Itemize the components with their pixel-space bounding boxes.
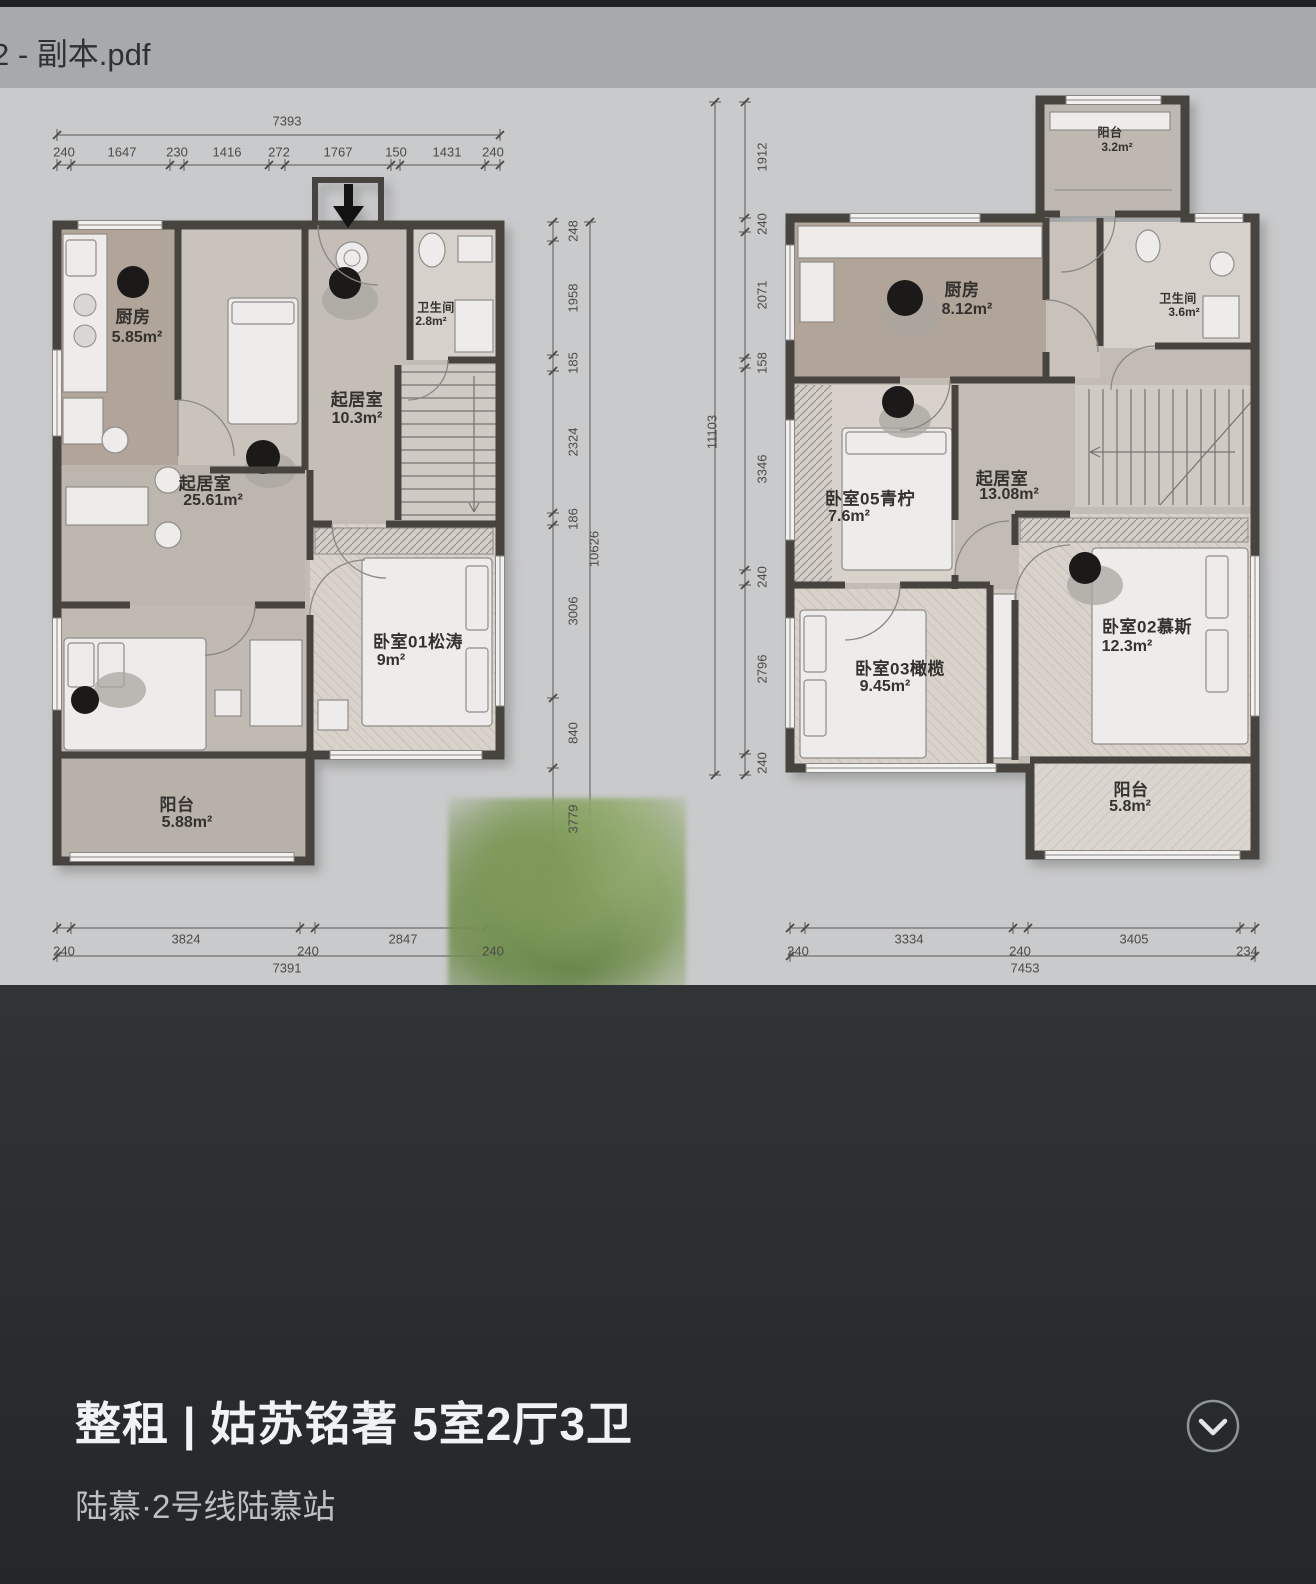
dimension-label: 1912 xyxy=(755,143,770,172)
room-area: 5.8m² xyxy=(1109,798,1151,816)
dimension-label: 240 xyxy=(53,944,75,959)
dimension-label: 7453 xyxy=(1011,961,1040,976)
dimension-label: 1647 xyxy=(108,145,137,160)
floor-plan-1 xyxy=(53,180,505,862)
dimension-label: 1767 xyxy=(324,145,353,160)
dimension-label: 1416 xyxy=(213,145,242,160)
dimension-label: 240 xyxy=(53,145,75,160)
dimension-label: 240 xyxy=(1009,944,1031,959)
room-area: 25.61m² xyxy=(183,492,243,510)
room-label: 卧室03橄榄 xyxy=(855,655,945,680)
pdf-page[interactable]: 7393240164723014162721767150143124024819… xyxy=(0,88,1316,985)
room-area: 9m² xyxy=(377,652,405,670)
dimension-label: 1958 xyxy=(566,284,581,313)
dimension-label: 2796 xyxy=(755,655,770,684)
dimension-label: 3779 xyxy=(566,805,581,834)
dimension-label: 3334 xyxy=(895,932,924,947)
room-area: 2.8m² xyxy=(415,314,446,328)
dimension-label: 240 xyxy=(482,944,504,959)
listing-panel: 整租 | 姑苏铭著 5室2厅3卫 陆慕·2号线陆慕站 xyxy=(0,985,1316,1584)
room-label: 厨房 xyxy=(945,276,980,301)
dimension-label: 234 xyxy=(1236,944,1258,959)
dimension-label: 240 xyxy=(787,944,809,959)
room-label: 起居室 xyxy=(179,470,232,495)
dimension-label: 3824 xyxy=(172,932,201,947)
room-area: 9.45m² xyxy=(860,678,911,696)
room-label: 卧室01松涛 xyxy=(373,628,463,653)
dimension-label: 7391 xyxy=(273,961,302,976)
dimension-label: 158 xyxy=(755,352,770,374)
dimension-label: 240 xyxy=(755,566,770,588)
room-area: 10.3m² xyxy=(332,410,383,428)
room-area: 7.6m² xyxy=(828,508,870,526)
pdf-titlebar: 2 - 副本.pdf xyxy=(0,7,1316,88)
room-area: 3.6m² xyxy=(1168,305,1199,319)
chevron-down-icon xyxy=(1185,1398,1241,1454)
room-area: 8.12m² xyxy=(942,301,993,319)
dimension-label: 272 xyxy=(268,145,290,160)
screen: 2 - 副本.pdf xyxy=(0,0,1316,1584)
dimension-label: 3006 xyxy=(566,597,581,626)
room-area: 13.08m² xyxy=(979,486,1039,504)
room-area: 3.2m² xyxy=(1101,140,1132,154)
listing-title: 整租 | 姑苏铭著 5室2厅3卫 xyxy=(75,1388,633,1454)
room-label: 阳台 xyxy=(1114,776,1149,801)
dimension-label: 186 xyxy=(566,508,581,530)
room-label: 卧室02慕斯 xyxy=(1102,613,1192,638)
dimension-label: 1431 xyxy=(433,145,462,160)
dimension-label: 2847 xyxy=(389,932,418,947)
room-label: 卫生间 xyxy=(1159,290,1197,307)
room-area: 5.85m² xyxy=(112,329,163,347)
room-label: 卫生间 xyxy=(417,299,455,316)
room-area: 5.88m² xyxy=(162,814,213,832)
collapse-button[interactable] xyxy=(1185,1398,1241,1454)
pdf-filename: 2 - 副本.pdf xyxy=(0,29,151,74)
status-strip xyxy=(0,0,1316,7)
dimension-label: 230 xyxy=(166,145,188,160)
dimension-label: 240 xyxy=(482,145,504,160)
dimension-label: 2324 xyxy=(566,428,581,457)
listing-location: 陆慕·2号线陆慕站 xyxy=(75,1480,335,1528)
dimension-label: 248 xyxy=(566,220,581,242)
dimension-label: 240 xyxy=(297,944,319,959)
room-label: 阳台 xyxy=(1097,124,1122,141)
dimension-label: 185 xyxy=(566,352,581,374)
room-label: 卧室05青柠 xyxy=(825,485,915,510)
dimension-label: 3346 xyxy=(755,455,770,484)
room-label: 阳台 xyxy=(160,791,195,816)
dimension-label: 2071 xyxy=(755,281,770,310)
dimension-label: 150 xyxy=(385,145,407,160)
room-area: 12.3m² xyxy=(1102,638,1153,656)
dimension-label: 11103 xyxy=(705,415,720,449)
dimension-label: 10626 xyxy=(587,531,602,567)
dimension-label: 7393 xyxy=(273,114,302,129)
room-label: 起居室 xyxy=(331,386,384,411)
entry-arrow xyxy=(344,184,353,206)
dimension-label: 240 xyxy=(755,213,770,235)
dimension-label: 3405 xyxy=(1120,932,1149,947)
room-label: 厨房 xyxy=(116,303,151,328)
dimension-label: 240 xyxy=(755,752,770,774)
dimension-label: 840 xyxy=(566,722,581,744)
